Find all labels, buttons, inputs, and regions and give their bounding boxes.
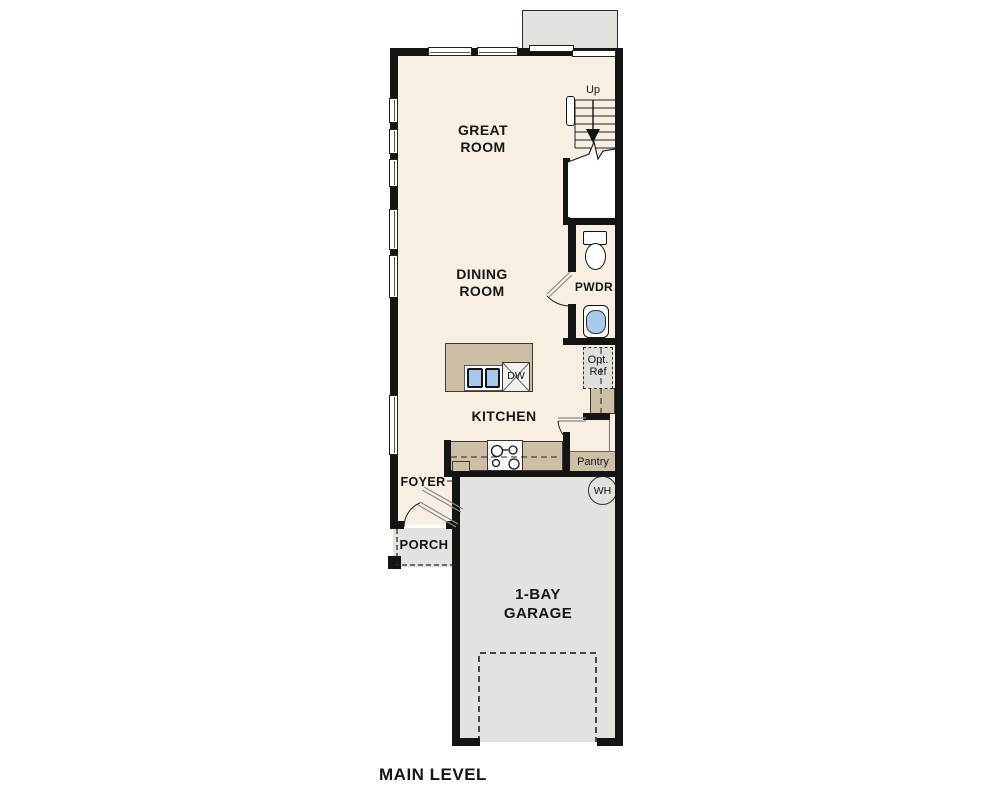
pwdr-sink-basin — [586, 310, 606, 334]
water-heater-label: WH — [588, 485, 617, 497]
wall-kitchen-garage — [445, 471, 623, 477]
wall-garage-bottom-left — [452, 738, 480, 746]
kitchen-label: KITCHEN — [454, 408, 554, 425]
window-top-1 — [428, 47, 472, 56]
sliding-door-panel-1 — [529, 45, 574, 52]
wall-pantry-left — [563, 432, 570, 477]
pantry-wall-line — [609, 419, 610, 452]
stair-newel — [566, 96, 575, 126]
opt-ref-label: Opt.Ref — [583, 354, 613, 378]
porch-label: PORCH — [397, 538, 451, 551]
great-room-label: GREATROOM — [433, 122, 533, 156]
patio-pad — [522, 10, 618, 49]
window-top-2 — [477, 47, 518, 56]
dishwasher-label: DW — [502, 370, 530, 382]
wall-pantry-stub — [583, 413, 610, 420]
wall-garage-left — [452, 471, 460, 742]
wall-pwdr-upper — [568, 225, 576, 272]
stairs-up-label: Up — [581, 84, 605, 96]
foyer-label: FOYER — [398, 476, 448, 489]
wall-pwdr-lower — [568, 304, 576, 340]
sliding-door-panel-2 — [572, 50, 616, 57]
wall-foyer-bottom-left — [390, 521, 404, 529]
plan-title: MAIN LEVEL — [379, 766, 519, 783]
floor-plan: GREATROOM DININGROOM KITCHEN FOYER PORCH… — [0, 0, 1000, 800]
island-sink-basin-left — [467, 368, 483, 388]
dining-room-label: DININGROOM — [432, 266, 532, 300]
wall-stair-left — [563, 158, 570, 225]
wall-pwdr-bottom — [563, 338, 623, 345]
window-left-2 — [389, 129, 398, 154]
garage-label: 1-BAYGARAGE — [488, 585, 588, 623]
range-box — [487, 440, 523, 471]
pantry-label: Pantry — [570, 456, 616, 468]
pwdr-label: PWDR — [572, 281, 616, 294]
wall-stair-bottom — [563, 218, 623, 225]
window-left-3 — [389, 159, 398, 187]
wall-right — [615, 48, 623, 746]
window-left-5 — [389, 255, 398, 298]
island-sink-basin-right — [485, 368, 500, 388]
ref-cabinet — [590, 388, 615, 414]
wall-garage-bottom-right — [597, 738, 623, 746]
window-left-1 — [389, 98, 398, 123]
window-left-4 — [389, 209, 398, 250]
toilet-bowl — [585, 243, 606, 270]
porch-post — [388, 556, 401, 569]
window-left-6 — [389, 395, 398, 455]
